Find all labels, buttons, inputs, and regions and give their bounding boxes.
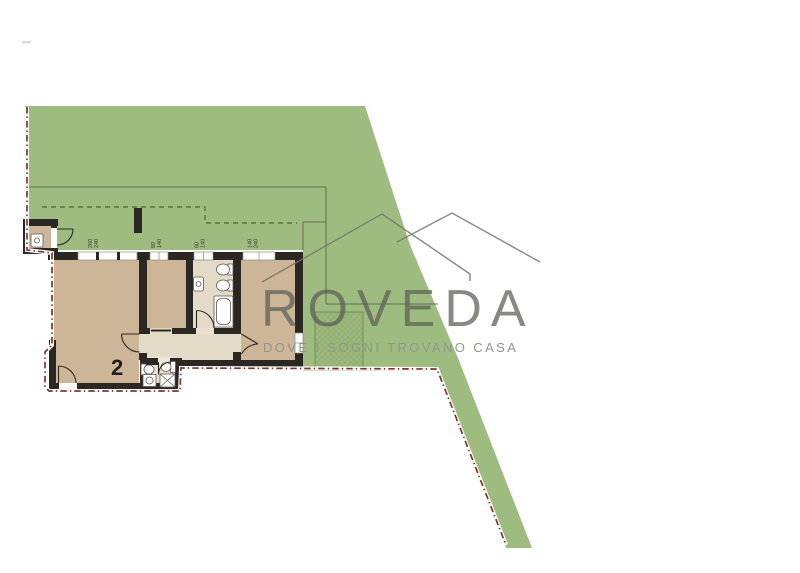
toilet: [217, 264, 230, 275]
window-1: [78, 252, 137, 260]
watermark-brand: ROVEDA: [261, 280, 535, 338]
watermark-tagline: DOVE I SOGNI TROVANO CASA: [263, 340, 518, 355]
stray-mark: [22, 41, 31, 44]
floor-plan-svg: ROVEDA DOVE I SOGNI TROVANO CASA 2 260 2…: [0, 0, 800, 573]
window-2-height: 140: [157, 239, 163, 248]
hallway-floor: [139, 332, 241, 360]
room-2-floor: [53, 258, 139, 383]
middle-room-floor: [147, 260, 186, 330]
window-1-height: 240: [94, 239, 100, 248]
window-3-height: 140: [201, 239, 207, 248]
bathroom-bottom-sink: [144, 365, 154, 374]
unit-number: 2: [111, 355, 123, 380]
bathroom-bottom-toilet: [161, 363, 171, 372]
window-4-height: 240: [254, 239, 260, 248]
floor-plan-image: ROVEDA DOVE I SOGNI TROVANO CASA 2 260 2…: [0, 0, 800, 573]
bidet: [217, 280, 230, 291]
garden-pillar: [134, 208, 142, 233]
